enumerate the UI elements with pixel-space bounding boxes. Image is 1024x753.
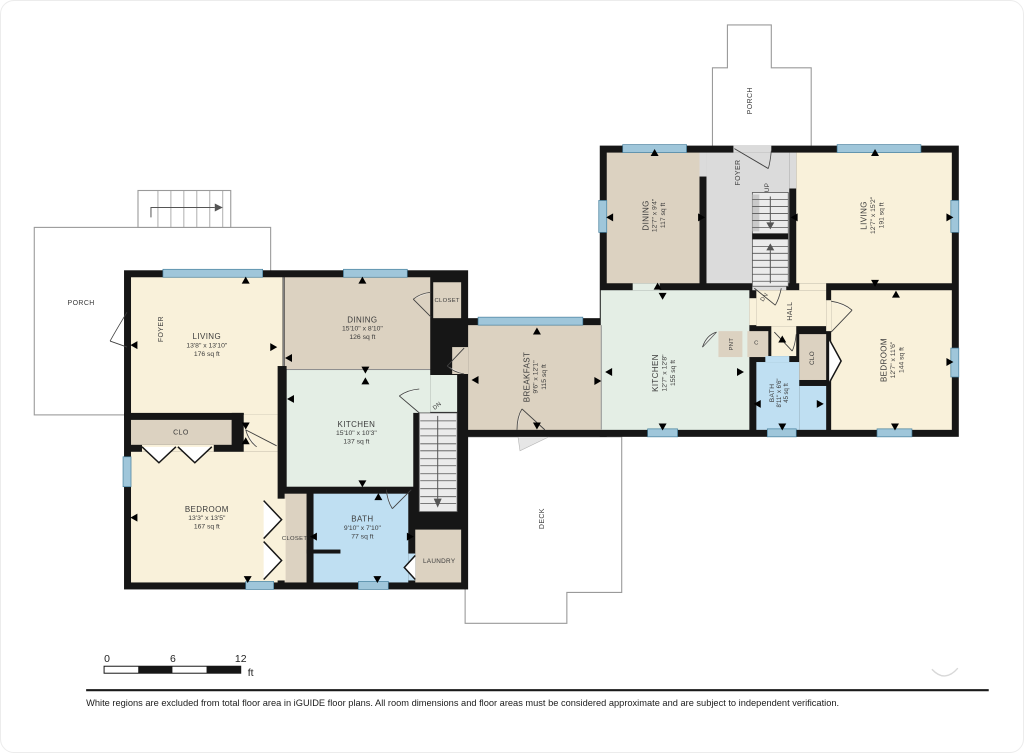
label-laundry: LAUNDRY [423, 558, 456, 565]
svg-text:BATH: BATH [769, 384, 776, 403]
scale-tick-6: 6 [170, 654, 176, 665]
scale-tick-0: 0 [104, 654, 110, 665]
room-label-dining-right: DINING 12'7" x 9'4" 117 sq ft [641, 198, 667, 232]
label-porch-right: PORCH [747, 87, 754, 114]
svg-text:13'3" x 13'5": 13'3" x 13'5" [188, 515, 226, 522]
svg-text:LIVING: LIVING [860, 201, 869, 230]
svg-text:DINING: DINING [347, 315, 377, 324]
label-pnt: PNT [729, 338, 735, 351]
compass-arc [932, 668, 958, 676]
svg-text:77 sq ft: 77 sq ft [351, 533, 373, 540]
scale-tick-12: 12 [235, 654, 247, 665]
scale-unit: ft [248, 668, 254, 679]
svg-text:15'10" x 8'10": 15'10" x 8'10" [342, 325, 383, 332]
svg-text:KITCHEN: KITCHEN [338, 420, 376, 429]
svg-text:8'11" x 6'6": 8'11" x 6'6" [777, 378, 783, 407]
svg-text:176 sq ft: 176 sq ft [194, 351, 220, 358]
room-laundry [415, 530, 461, 583]
svg-text:45 sq ft: 45 sq ft [784, 383, 790, 403]
svg-text:12'7" x 11'6": 12'7" x 11'6" [890, 341, 897, 378]
label-porch-left: PORCH [68, 300, 95, 307]
svg-text:115 sq ft: 115 sq ft [541, 364, 548, 390]
svg-text:9'6" x 12'1": 9'6" x 12'1" [533, 360, 540, 394]
svg-text:144 sq ft: 144 sq ft [898, 347, 905, 373]
svg-text:13'8" x 13'10": 13'8" x 13'10" [186, 342, 227, 349]
svg-text:KITCHEN: KITCHEN [651, 354, 660, 392]
left-porch-exterior-stairs [138, 190, 231, 227]
label-clo-left: CLO [173, 430, 189, 437]
disclaimer-text: White regions are excluded from total fl… [86, 698, 839, 708]
stairs-right-switchback [752, 192, 788, 286]
floor-plan-canvas: LIVING 13'8" x 13'10" 176 sq ft DINING 1… [1, 1, 1023, 752]
svg-text:9'10" x 7'10": 9'10" x 7'10" [344, 525, 382, 532]
svg-text:12'7" x 12'8": 12'7" x 12'8" [661, 354, 668, 392]
label-up: UP [764, 183, 771, 192]
floor-plan-card: LIVING 13'8" x 13'10" 176 sq ft DINING 1… [0, 0, 1024, 753]
svg-text:167 sq ft: 167 sq ft [194, 523, 220, 530]
svg-text:DINING: DINING [641, 200, 650, 230]
label-foyer-left: FOYER [158, 316, 165, 342]
svg-text:12'7" x 9'4": 12'7" x 9'4" [651, 198, 658, 232]
label-foyer-right: FOYER [735, 160, 742, 186]
svg-text:12'7" x 15'2": 12'7" x 15'2" [870, 196, 877, 234]
label-closet-bedroom: CLOSET [282, 536, 307, 542]
svg-text:BATH: BATH [351, 515, 373, 524]
svg-text:155 sq ft: 155 sq ft [670, 360, 677, 386]
label-closet-top: CLOSET [435, 298, 460, 304]
label-clo-right: CLO [809, 351, 816, 365]
svg-text:LIVING: LIVING [193, 332, 222, 341]
svg-text:15'10" x 10'3": 15'10" x 10'3" [336, 430, 377, 437]
svg-text:BEDROOM: BEDROOM [880, 338, 889, 382]
svg-text:117 sq ft: 117 sq ft [660, 203, 667, 229]
right-porch [712, 25, 811, 147]
svg-text:137 sq ft: 137 sq ft [343, 439, 369, 446]
label-hall: HALL [787, 302, 794, 321]
scale-bar: 0 6 12 ft [104, 654, 254, 679]
label-deck: DECK [539, 508, 546, 529]
svg-text:191 sq ft: 191 sq ft [878, 202, 885, 228]
label-c: C [754, 341, 759, 347]
svg-text:BREAKFAST: BREAKFAST [523, 352, 532, 403]
svg-text:BEDROOM: BEDROOM [185, 505, 229, 514]
svg-text:126 sq ft: 126 sq ft [349, 334, 375, 341]
stairs-left-down [413, 413, 457, 512]
